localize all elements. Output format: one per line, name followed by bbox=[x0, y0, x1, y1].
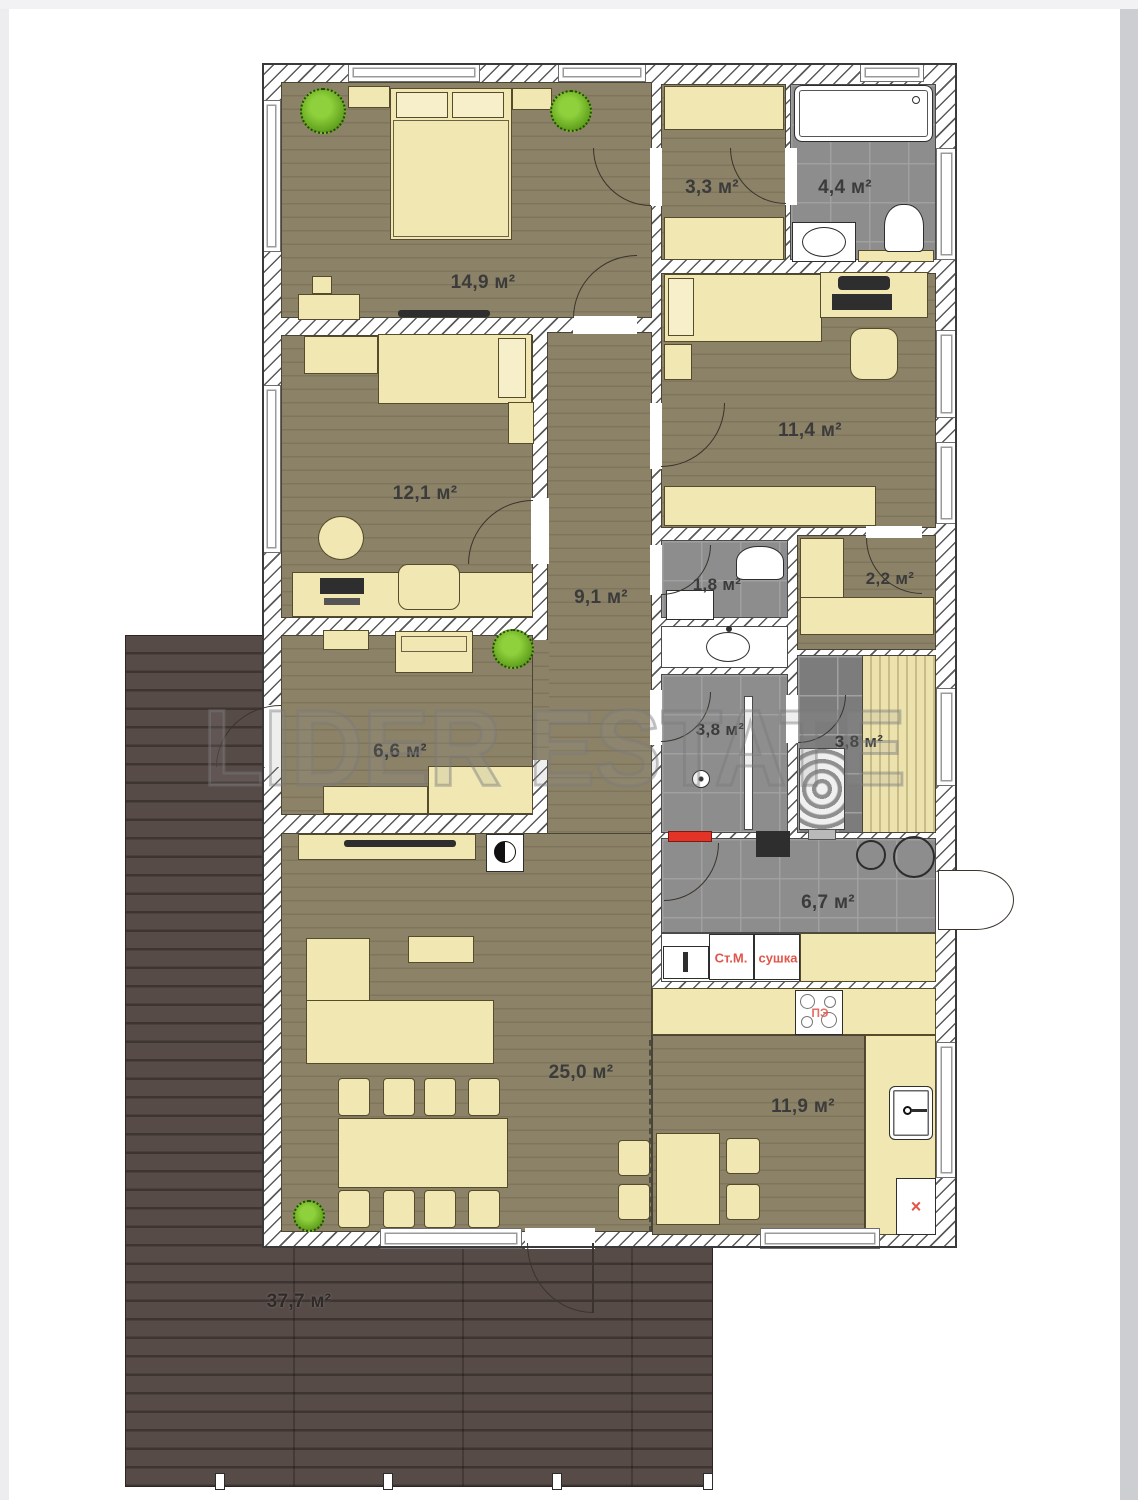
water-tank bbox=[893, 836, 935, 878]
fire-extinguisher-shelf bbox=[668, 831, 712, 842]
terrace-post bbox=[703, 1473, 713, 1490]
floor-plan-image: 14,9 м² 3,3 м² 4,4 м² 12,1 м² 11,4 м² 9,… bbox=[0, 0, 1138, 1500]
window bbox=[760, 1228, 880, 1249]
tv bbox=[398, 310, 490, 317]
faucet bbox=[726, 626, 732, 632]
keyboard bbox=[324, 598, 360, 605]
room-label-hallway: 9,1 м² bbox=[574, 587, 628, 609]
bathtub bbox=[794, 85, 933, 142]
window bbox=[380, 1228, 522, 1249]
low-cabinet bbox=[664, 486, 876, 526]
pillow bbox=[452, 92, 504, 118]
dining-chair bbox=[383, 1190, 415, 1228]
room-label-terrace: 37,7 м² bbox=[267, 1291, 332, 1313]
terrace-post bbox=[383, 1473, 393, 1490]
pillow bbox=[396, 92, 448, 118]
window bbox=[936, 148, 957, 260]
washing-machine-label: Ст.М. bbox=[715, 951, 748, 966]
breakfast-table bbox=[656, 1133, 720, 1225]
room-label-wardrobe: 2,2 м² bbox=[866, 569, 914, 589]
toilet bbox=[736, 546, 784, 580]
plant bbox=[492, 629, 534, 669]
round-stool bbox=[318, 516, 364, 560]
room-label-wc: 1,8 м² bbox=[693, 575, 741, 595]
room-label-kitchen: 11,9 м² bbox=[771, 1096, 835, 1118]
pillow bbox=[498, 338, 526, 398]
nightstand bbox=[664, 344, 692, 380]
window bbox=[262, 100, 281, 252]
dining-chair bbox=[383, 1078, 415, 1116]
room-label-bedroom-1: 14,9 м² bbox=[451, 272, 516, 294]
left-edge-strip bbox=[0, 0, 9, 1500]
dining-chair bbox=[468, 1190, 500, 1228]
zone-divider-dashed bbox=[649, 1040, 651, 1232]
printer bbox=[838, 276, 890, 290]
door-opening bbox=[785, 148, 797, 205]
bathtub-drain bbox=[912, 96, 920, 104]
nightstand bbox=[512, 88, 552, 110]
dining-table bbox=[338, 1118, 508, 1188]
window bbox=[936, 330, 957, 418]
tv-cabinet bbox=[298, 834, 476, 860]
hall-cabinet bbox=[323, 630, 369, 650]
nook-chair bbox=[726, 1184, 760, 1220]
stove-label: ПЭ bbox=[811, 1006, 828, 1020]
room-label-bathroom: 4,4 м² bbox=[818, 177, 872, 199]
dining-chair bbox=[338, 1078, 370, 1116]
bench-back-line bbox=[401, 636, 467, 652]
side-table bbox=[508, 402, 534, 444]
door-opening bbox=[650, 148, 662, 206]
vent-unit bbox=[808, 829, 836, 840]
wardrobe-cabinet bbox=[664, 86, 784, 130]
right-edge-strip bbox=[1120, 0, 1138, 1500]
dining-chair bbox=[424, 1078, 456, 1116]
plant bbox=[293, 1200, 325, 1232]
tv bbox=[344, 840, 456, 847]
window bbox=[860, 63, 924, 82]
nightstand bbox=[348, 86, 390, 108]
plant bbox=[300, 88, 346, 134]
dining-chair bbox=[424, 1190, 456, 1228]
water-tank bbox=[856, 840, 886, 870]
exterior-door-leaf bbox=[938, 870, 1014, 930]
nook-chair bbox=[726, 1138, 760, 1174]
terrace-post bbox=[215, 1473, 225, 1490]
keyboard bbox=[832, 294, 892, 310]
sink-bowl bbox=[706, 632, 750, 662]
boiler bbox=[756, 831, 790, 857]
window bbox=[936, 688, 957, 786]
top-edge-strip bbox=[0, 0, 1138, 9]
utility-counter bbox=[800, 933, 936, 982]
desk-chair bbox=[398, 564, 460, 610]
toilet bbox=[884, 204, 924, 252]
monitor bbox=[320, 578, 364, 594]
window bbox=[558, 63, 646, 82]
dresser bbox=[298, 294, 360, 320]
window bbox=[262, 385, 281, 553]
sink-bowl bbox=[802, 227, 846, 257]
door-opening bbox=[866, 526, 922, 538]
dishwasher-mark: × bbox=[911, 1197, 922, 1218]
coffee-table bbox=[408, 936, 474, 963]
nightstand bbox=[304, 336, 378, 374]
heater-knob bbox=[683, 952, 688, 972]
terrace-post bbox=[552, 1473, 562, 1490]
door-leaf-line bbox=[592, 1243, 594, 1313]
nook-chair bbox=[618, 1184, 650, 1220]
kitchen-counter-top bbox=[652, 988, 936, 1035]
window bbox=[936, 442, 957, 524]
fireplace-dial bbox=[494, 841, 516, 863]
room-label-bedroom-2: 12,1 м² bbox=[393, 483, 458, 505]
window bbox=[348, 63, 480, 82]
room-label-utility-room: 6,7 м² bbox=[801, 892, 855, 914]
room-label-bedroom-3: 11,4 м² bbox=[778, 420, 842, 442]
faucet-arm bbox=[911, 1109, 927, 1112]
room-label-living-room: 25,0 м² bbox=[549, 1062, 614, 1084]
wardrobe-unit bbox=[800, 597, 934, 635]
watermark-text: LIDER ESTATE bbox=[203, 688, 902, 806]
office-chair bbox=[850, 328, 898, 380]
pillow bbox=[668, 278, 694, 336]
table-lamp bbox=[312, 276, 332, 294]
wardrobe-cabinet bbox=[664, 217, 784, 260]
door-opening bbox=[573, 316, 637, 334]
room-label-dressing-room: 3,3 м² bbox=[685, 177, 739, 199]
corner-sofa bbox=[306, 1000, 494, 1064]
dryer-label: сушка bbox=[758, 951, 797, 966]
bed-blanket-line bbox=[393, 120, 509, 237]
dining-chair bbox=[338, 1190, 370, 1228]
dining-chair bbox=[468, 1078, 500, 1116]
door-opening bbox=[531, 498, 549, 564]
window bbox=[936, 1042, 957, 1178]
nook-chair bbox=[618, 1140, 650, 1176]
plant bbox=[550, 90, 592, 132]
